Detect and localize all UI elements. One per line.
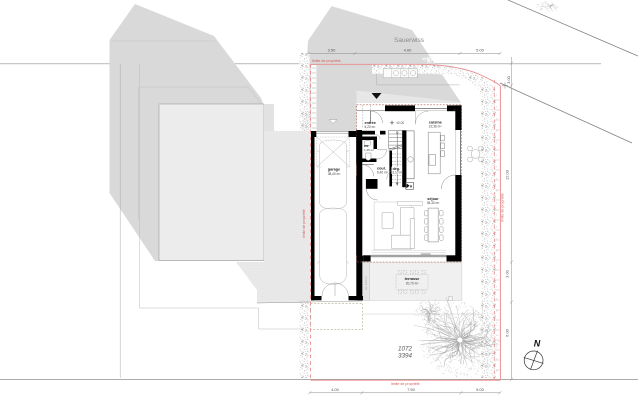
svg-text:ext. 6,10 m²: ext. 6,10 m² xyxy=(364,276,368,290)
svg-text:3.00: 3.00 xyxy=(505,269,510,278)
svg-text:6.00: 6.00 xyxy=(505,328,510,337)
svg-text:limite de propriété: limite de propriété xyxy=(302,209,306,238)
svg-text:3.50: 3.50 xyxy=(328,48,337,53)
svg-text:3,10 m²: 3,10 m² xyxy=(392,171,403,175)
svg-text:4.00: 4.00 xyxy=(404,48,413,53)
svg-text:±0.00: ±0.00 xyxy=(396,121,404,125)
svg-text:22,36 m²: 22,36 m² xyxy=(429,125,442,129)
svg-text:1,45 m²: 1,45 m² xyxy=(364,148,374,152)
svg-text:7.50: 7.50 xyxy=(407,387,416,392)
svg-text:N: N xyxy=(534,339,541,349)
svg-text:terrasse: terrasse xyxy=(405,277,420,281)
svg-text:limite de propriété: limite de propriété xyxy=(501,193,505,222)
svg-text:6,40 m²: 6,40 m² xyxy=(377,170,388,174)
svg-text:5.00: 5.00 xyxy=(476,387,485,392)
svg-text:limite de propriété: limite de propriété xyxy=(312,59,341,63)
svg-text:20,70 m²: 20,70 m² xyxy=(406,282,419,286)
svg-text:38,40 m²: 38,40 m² xyxy=(328,172,341,176)
svg-text:1072: 1072 xyxy=(398,346,413,353)
svg-text:limite de propriété: limite de propriété xyxy=(391,382,420,386)
svg-text:5.00: 5.00 xyxy=(476,48,485,53)
svg-text:3.00: 3.00 xyxy=(506,75,511,84)
svg-text:Sauerwiss: Sauerwiss xyxy=(394,37,425,44)
svg-text:5,20 m²: 5,20 m² xyxy=(365,125,376,129)
svg-text:4.00: 4.00 xyxy=(331,387,340,392)
svg-text:35,30 m²: 35,30 m² xyxy=(427,201,440,205)
svg-text:12.00: 12.00 xyxy=(505,169,510,180)
svg-text:3394: 3394 xyxy=(398,353,413,360)
